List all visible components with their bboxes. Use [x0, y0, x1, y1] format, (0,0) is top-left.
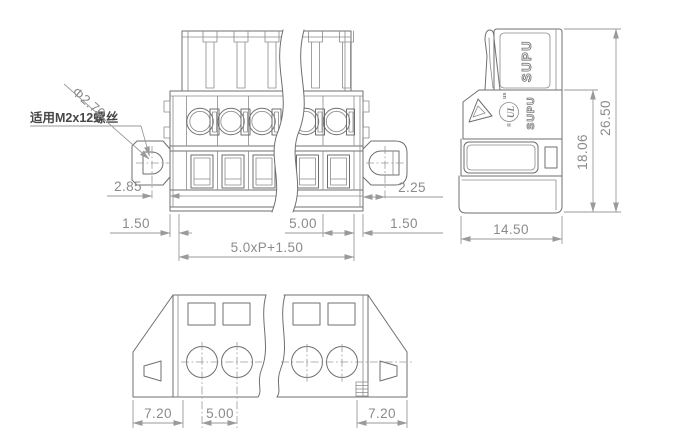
bottom-dimensions: 7.20 5.00 7.20	[133, 400, 407, 428]
side-base-block	[459, 176, 562, 213]
dim-left-end: 1.50	[122, 216, 150, 231]
front-plug-housing	[182, 31, 354, 91]
dim-depth: 14.50	[493, 222, 529, 237]
svg-text:UL: UL	[506, 106, 516, 118]
dim-bottom-pitch: 5.00	[206, 406, 234, 421]
side-dimensions: 18.06 26.50 14.50	[461, 29, 621, 244]
bottom-right-flange	[368, 295, 407, 397]
svg-text:us: us	[502, 93, 508, 99]
dim-right-end: 1.50	[390, 216, 418, 231]
bottom-left-flange	[133, 295, 173, 397]
bottom-right-section	[277, 295, 412, 397]
side-release-lever	[485, 30, 500, 90]
dim-left-flange-width: 7.20	[144, 406, 172, 421]
registered-mark: ®	[506, 123, 513, 127]
brand-text-body: SUPU	[525, 96, 537, 129]
front-dimensions: 2.85 2.25 1.50 5.00 1.50 5.0xP+1.50	[107, 179, 443, 261]
side-view: SUPU UL us ® SUPU 18.06	[459, 29, 621, 244]
warning-triangle-icon	[469, 99, 492, 122]
clamp-window-side	[545, 147, 557, 168]
dim-left-flange-offset: 2.85	[114, 179, 142, 194]
plug-slots	[203, 31, 354, 88]
dim-right-flange-offset: 2.25	[398, 180, 426, 195]
bottom-view: 7.20 5.00 7.20	[133, 295, 412, 428]
dim-body-height: 18.06	[575, 134, 590, 170]
drawing-canvas: 适用M2x12螺丝 Φ2.70 2.85 2.25 1.50 5.00	[0, 0, 680, 440]
dim-right-flange-width: 7.20	[368, 406, 396, 421]
wire-openings	[191, 155, 350, 188]
vent-hatch	[356, 382, 368, 396]
dim-total-length: 5.0xP+1.50	[231, 240, 304, 255]
flange-cutout	[144, 361, 161, 381]
dim-pitch: 5.00	[289, 216, 317, 231]
wire-entry-side	[464, 142, 538, 173]
screw-terminals	[187, 108, 355, 135]
side-lower-block	[461, 139, 562, 176]
front-view: 适用M2x12螺丝 Φ2.70 2.85 2.25 1.50 5.00	[30, 30, 443, 261]
brand-text-plug: SUPU	[519, 40, 534, 82]
flange-cutout	[380, 361, 397, 381]
side-marking-block: UL us ® SUPU	[463, 90, 562, 139]
dim-total-height: 26.50	[598, 100, 613, 136]
side-plug-block: SUPU	[494, 29, 562, 90]
front-body	[164, 91, 369, 211]
technical-drawing: 适用M2x12螺丝 Φ2.70 2.85 2.25 1.50 5.00	[0, 0, 680, 440]
ul-certification-icon: UL us ®	[500, 93, 519, 127]
